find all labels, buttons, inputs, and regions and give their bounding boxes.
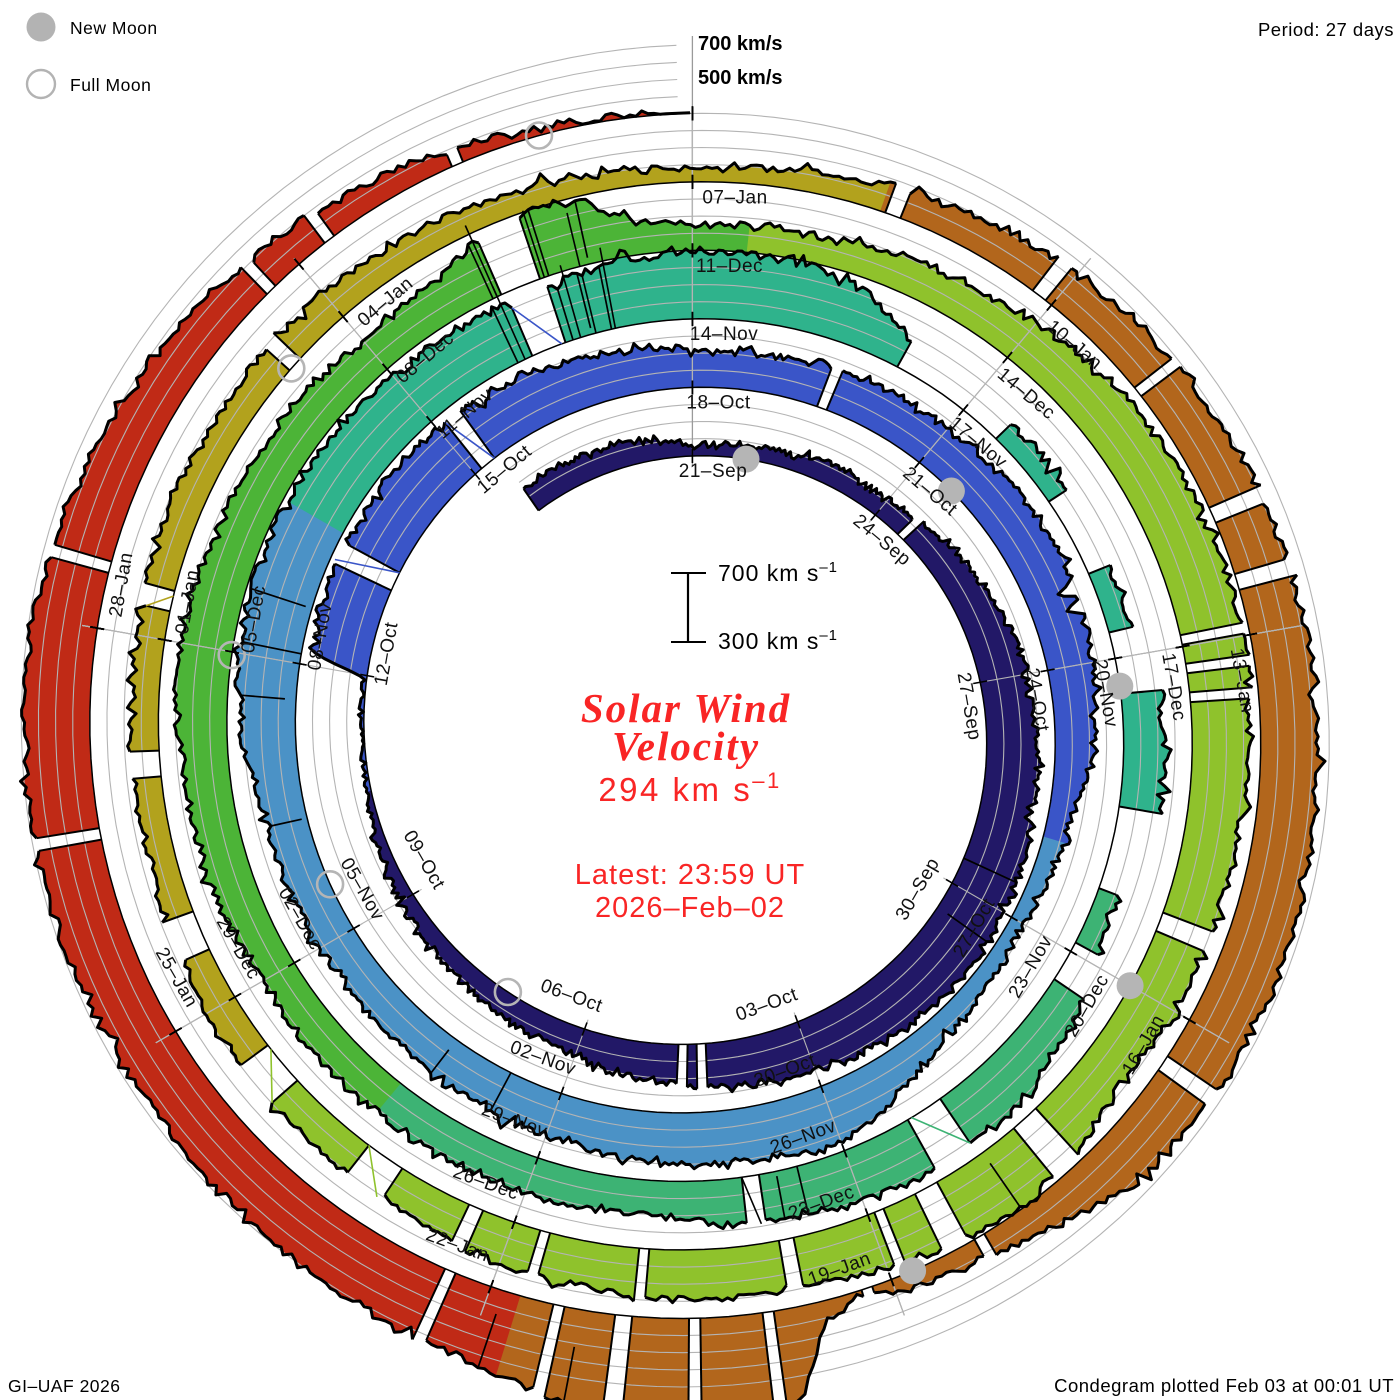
svg-text:Full Moon: Full Moon bbox=[70, 75, 151, 95]
svg-text:2026–Feb–02: 2026–Feb–02 bbox=[595, 892, 785, 924]
svg-text:700 km/s: 700 km/s bbox=[698, 33, 783, 55]
svg-text:07–Jan: 07–Jan bbox=[702, 188, 767, 209]
svg-text:18–Oct: 18–Oct bbox=[686, 393, 750, 414]
svg-text:21–Sep: 21–Sep bbox=[679, 461, 748, 482]
svg-text:Period: 27 days: Period: 27 days bbox=[1258, 19, 1394, 40]
svg-text:11–Dec: 11–Dec bbox=[696, 256, 763, 277]
svg-text:14–Nov: 14–Nov bbox=[690, 324, 759, 345]
svg-text:Condegram plotted Feb 03 at 00: Condegram plotted Feb 03 at 00:01 UT bbox=[1054, 1375, 1394, 1396]
svg-text:Latest: 23:59 UT: Latest: 23:59 UT bbox=[575, 859, 805, 891]
svg-text:500 km/s: 500 km/s bbox=[698, 67, 783, 89]
svg-text:Velocity: Velocity bbox=[612, 723, 760, 769]
svg-text:GI–UAF 2026: GI–UAF 2026 bbox=[8, 1376, 121, 1396]
svg-text:New Moon: New Moon bbox=[70, 18, 158, 38]
